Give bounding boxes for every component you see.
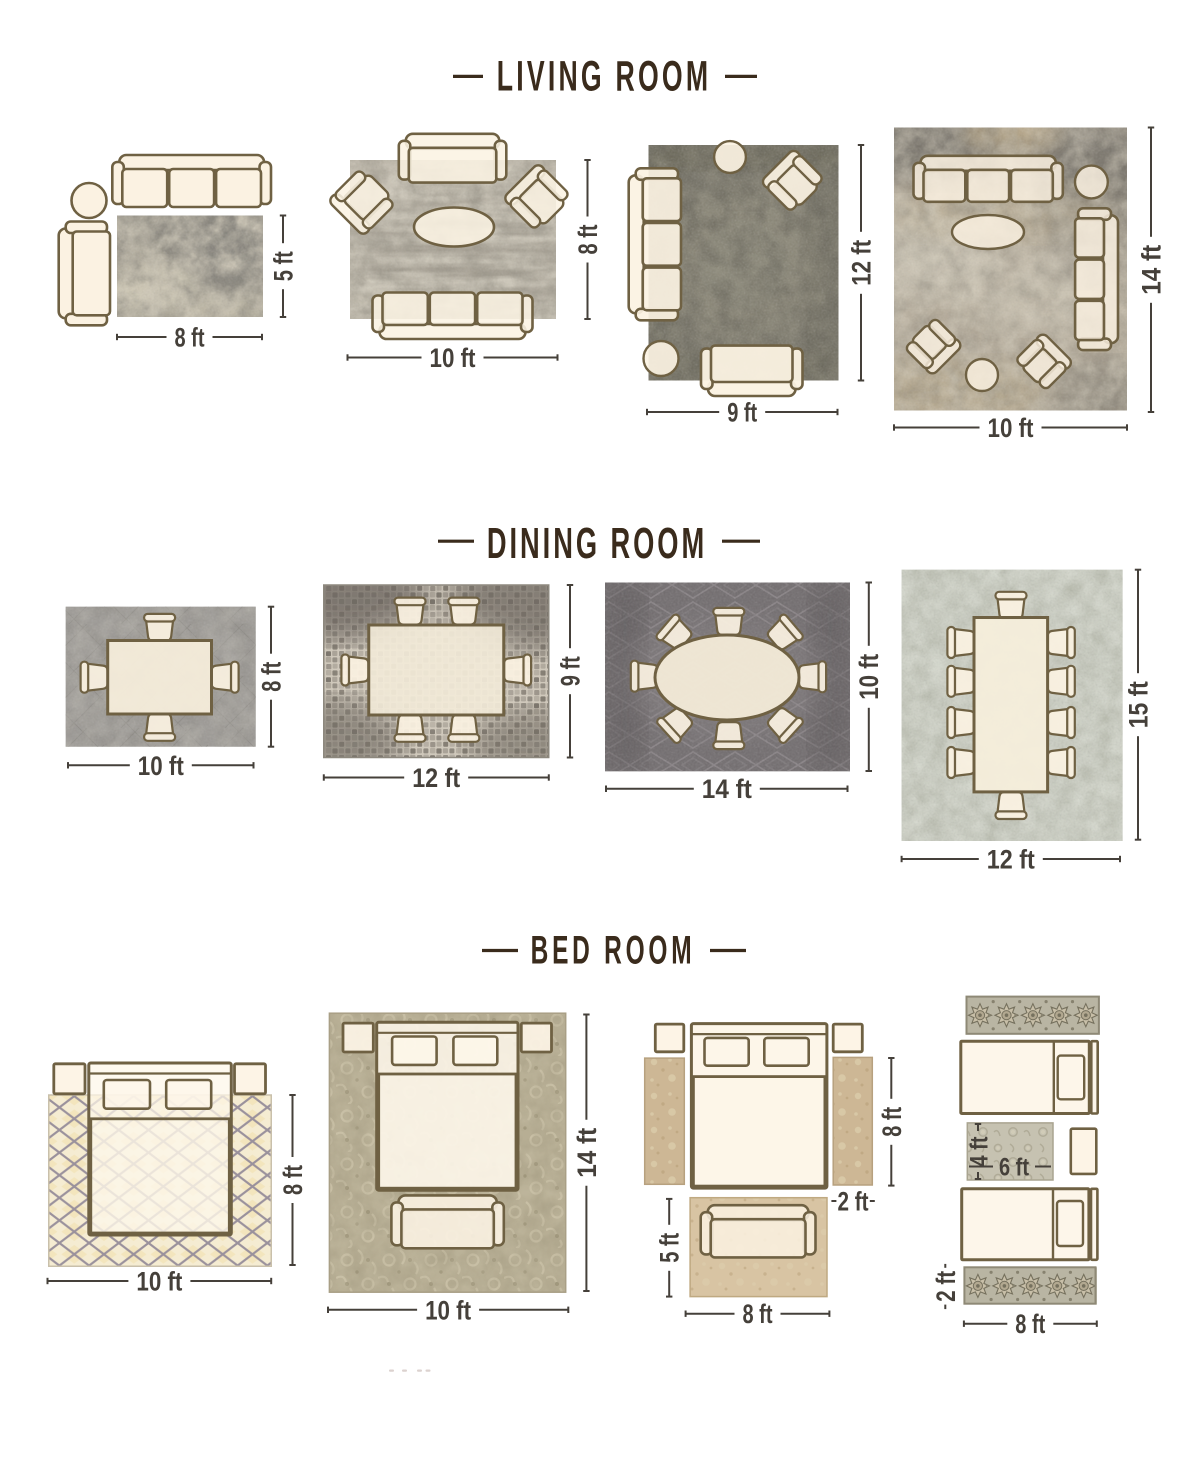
svg-text:2 ft: 2 ft bbox=[838, 1187, 869, 1217]
svg-text:6 ft: 6 ft bbox=[999, 1154, 1030, 1182]
svg-text:8 ft: 8 ft bbox=[573, 224, 603, 254]
svg-text:10 ft: 10 ft bbox=[138, 751, 184, 781]
svg-text:10 ft: 10 ft bbox=[425, 1295, 471, 1325]
svg-text:14 ft: 14 ft bbox=[1137, 245, 1167, 295]
svg-text:15 ft: 15 ft bbox=[1124, 681, 1154, 728]
svg-text:8 ft: 8 ft bbox=[877, 1107, 907, 1137]
svg-text:10 ft: 10 ft bbox=[136, 1267, 182, 1297]
svg-text:5 ft: 5 ft bbox=[655, 1233, 685, 1263]
svg-text:8 ft: 8 ft bbox=[1015, 1309, 1045, 1339]
svg-text:8 ft: 8 ft bbox=[743, 1299, 773, 1329]
svg-text:12 ft: 12 ft bbox=[847, 240, 877, 286]
svg-text:10 ft: 10 ft bbox=[430, 343, 476, 373]
svg-text:8 ft: 8 ft bbox=[278, 1165, 308, 1195]
svg-text:10 ft: 10 ft bbox=[988, 413, 1034, 443]
svg-text:14 ft: 14 ft bbox=[572, 1128, 602, 1178]
svg-text:5 ft: 5 ft bbox=[269, 251, 299, 281]
svg-text:14 ft: 14 ft bbox=[702, 774, 752, 804]
svg-text:9 ft: 9 ft bbox=[556, 656, 586, 686]
svg-text:10 ft: 10 ft bbox=[854, 654, 884, 700]
svg-text:4 ft: 4 ft bbox=[966, 1136, 994, 1167]
svg-text:BED ROOM: BED ROOM bbox=[531, 927, 696, 971]
svg-text:DINING ROOM: DINING ROOM bbox=[487, 518, 707, 567]
svg-text:8 ft: 8 ft bbox=[175, 323, 205, 353]
svg-text:9 ft: 9 ft bbox=[727, 398, 757, 428]
svg-text:8 ft: 8 ft bbox=[257, 662, 287, 692]
svg-text:12 ft: 12 ft bbox=[412, 763, 460, 793]
svg-text:LIVING ROOM: LIVING ROOM bbox=[497, 52, 712, 100]
svg-text:2 ft: 2 ft bbox=[931, 1271, 961, 1302]
svg-text:12 ft: 12 ft bbox=[987, 845, 1035, 875]
